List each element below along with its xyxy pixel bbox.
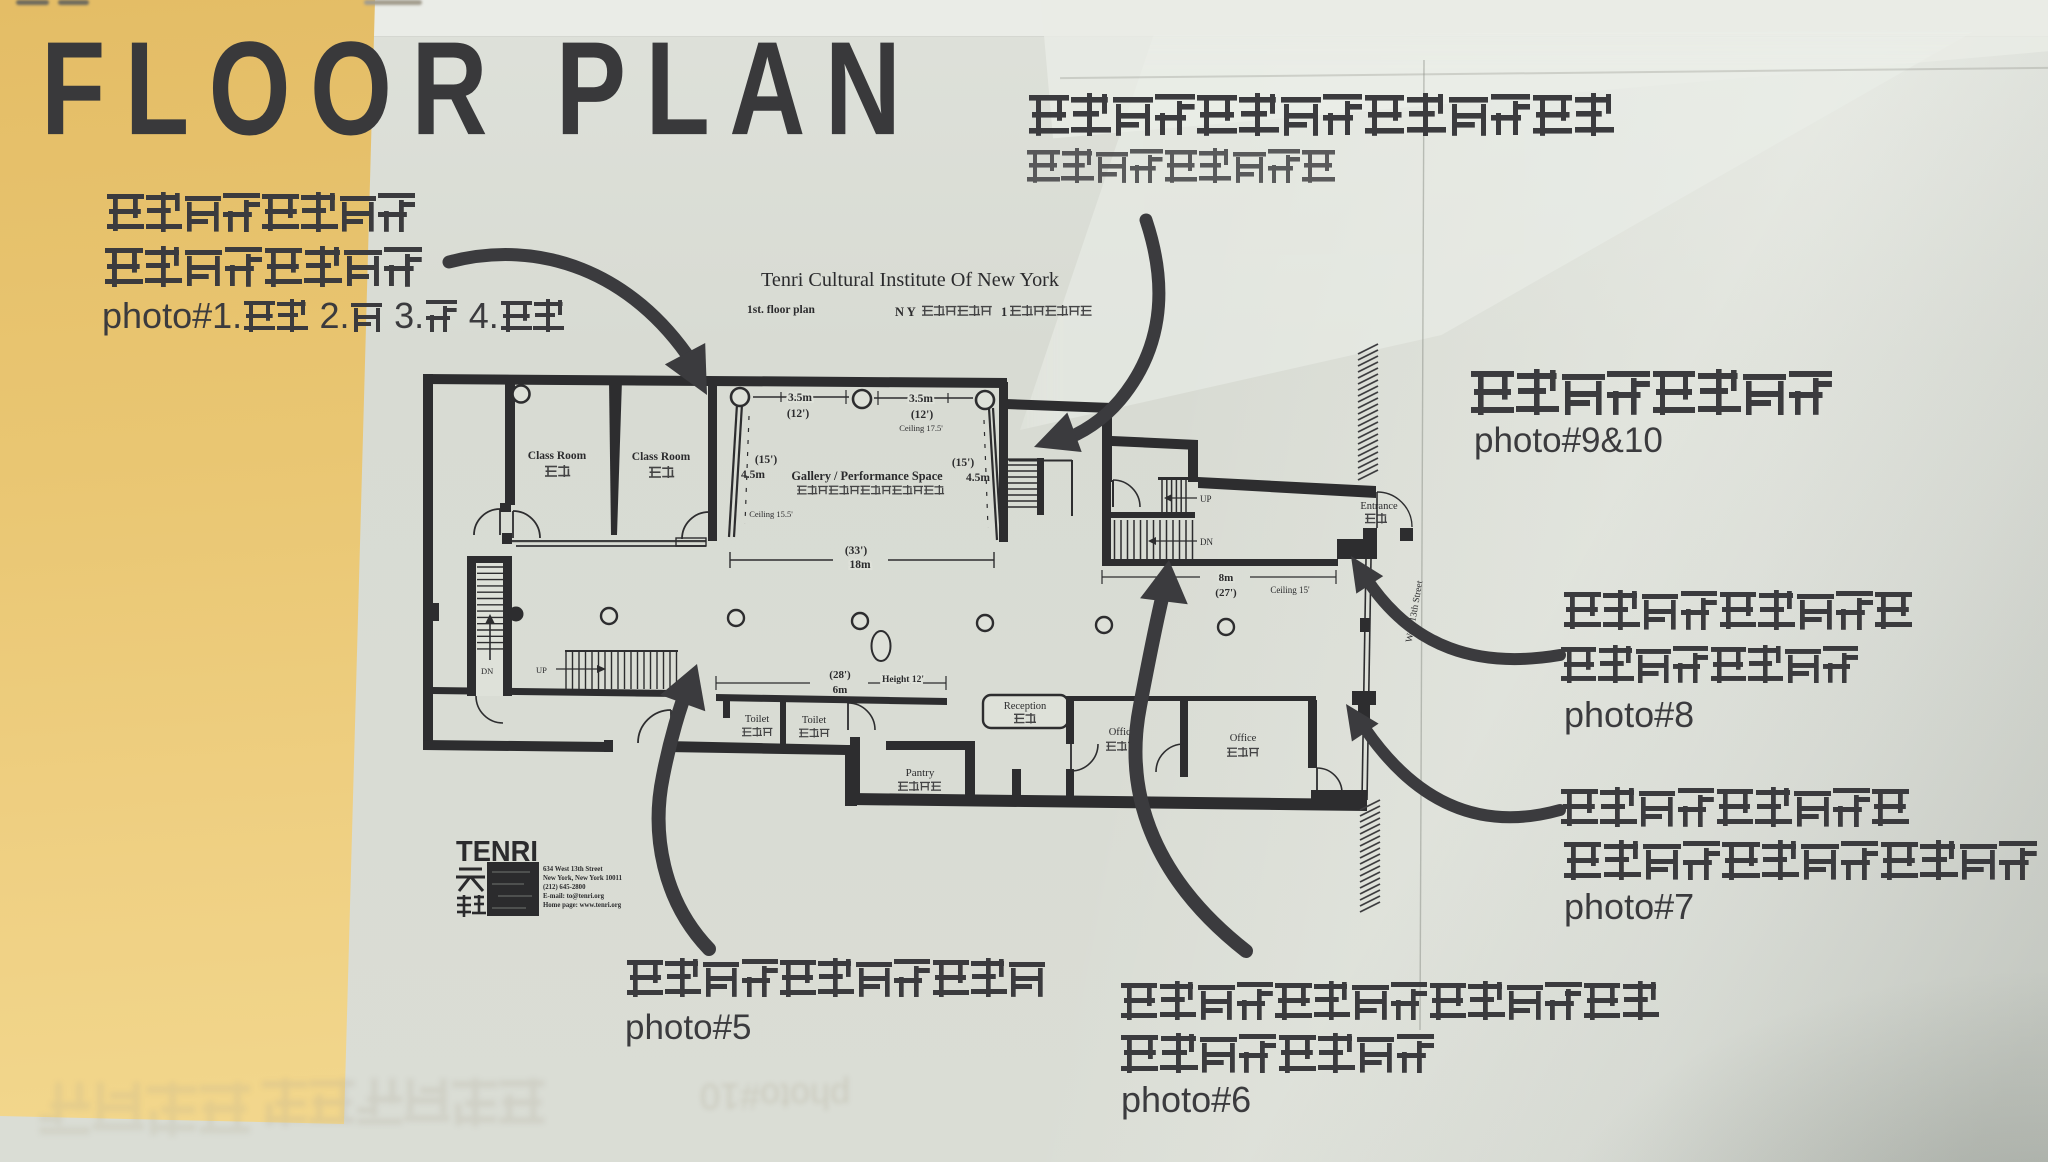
svg-text:Reception: Reception: [1004, 701, 1047, 712]
svg-text:Entrance: Entrance: [1360, 501, 1398, 512]
svg-text:N Y: N Y: [895, 305, 916, 319]
svg-text:UP: UP: [536, 665, 547, 675]
svg-text:(12'): (12'): [787, 408, 810, 420]
svg-text:Class Room: Class Room: [632, 451, 691, 463]
svg-text:3.5m: 3.5m: [788, 392, 812, 404]
svg-text:1: 1: [1001, 305, 1007, 319]
svg-text:(27'): (27'): [1215, 587, 1237, 599]
svg-text:Toilet: Toilet: [802, 715, 826, 726]
svg-text:4.5m: 4.5m: [966, 472, 990, 484]
svg-text:UP: UP: [1200, 494, 1212, 504]
svg-text:1st. floor plan: 1st. floor plan: [747, 304, 815, 316]
svg-text:(28'): (28'): [829, 669, 851, 681]
svg-text:Height 12': Height 12': [882, 675, 924, 685]
svg-text:6m: 6m: [833, 684, 848, 696]
svg-text:Pantry: Pantry: [906, 767, 935, 779]
svg-text:Ceiling 15': Ceiling 15': [1270, 585, 1310, 595]
svg-text:Tenri Cultural Institute Of Ne: Tenri Cultural Institute Of New York: [761, 269, 1060, 291]
svg-text:Home page: www.tenri.org: Home page: www.tenri.org: [543, 902, 622, 909]
svg-text:(12'): (12'): [911, 409, 934, 421]
svg-text:(15'): (15'): [952, 457, 975, 469]
svg-text:3.5m: 3.5m: [909, 393, 933, 405]
svg-text:Ceiling 15.5': Ceiling 15.5': [749, 509, 793, 519]
svg-text:(33'): (33'): [845, 545, 868, 557]
svg-text:DN: DN: [481, 666, 493, 676]
svg-text:Ceiling 17.5': Ceiling 17.5': [899, 423, 943, 433]
svg-text:E-mail: to@tenri.org: E-mail: to@tenri.org: [543, 893, 605, 900]
svg-text:Class Room: Class Room: [528, 450, 587, 462]
svg-text:Office: Office: [1230, 733, 1257, 744]
svg-text:New York, New York 10011: New York, New York 10011: [543, 875, 623, 882]
svg-text:634 West 13th Street: 634 West 13th Street: [543, 866, 603, 873]
svg-text:(15'): (15'): [755, 454, 778, 466]
svg-text:4.5m: 4.5m: [741, 469, 765, 481]
svg-text:DN: DN: [1200, 537, 1213, 547]
svg-text:Gallery / Performance Space: Gallery / Performance Space: [791, 469, 943, 483]
svg-text:18m: 18m: [849, 559, 871, 571]
svg-text:Toilet: Toilet: [745, 714, 769, 725]
svg-text:(212) 645-2800: (212) 645-2800: [543, 884, 586, 891]
svg-text:8m: 8m: [1219, 572, 1234, 584]
